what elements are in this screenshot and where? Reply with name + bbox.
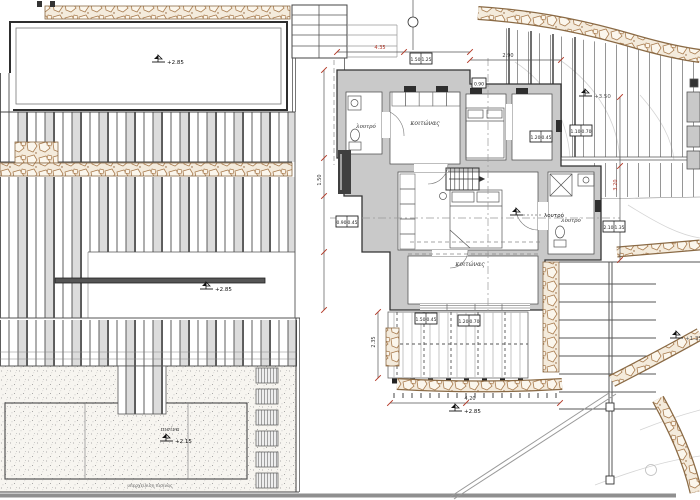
stone-wall-top [45,6,290,19]
stone-wall-steps [543,262,559,372]
keynote-value: 0.90 [336,220,346,226]
bedroom-lower-label: κοιτώνας [454,261,485,268]
keynote-box: 0.90 [472,78,486,88]
pool-label: πισίνα [160,426,180,433]
keynote-value: 0.45 [541,135,551,141]
level-marker-icon [449,404,462,411]
stone-step-detail [15,142,58,163]
keynote-value: 1.35 [614,225,624,231]
stone-column-left [386,328,399,366]
deck-band-b [0,177,295,252]
level-marker-icon [670,331,683,338]
dim-value: 1.50 [317,174,323,185]
keynote-value: 1.25 [421,57,431,63]
keynote-value: 0.45 [426,317,436,323]
level-value: +3.50 [594,94,611,100]
level-note: λουτρό [544,212,565,219]
keynote-value: 1.20 [530,135,540,141]
keynote-value: 1.20 [458,319,468,325]
deck-band-b2 [0,252,88,318]
keynote-value: 0.70 [469,319,479,325]
level-value: +1.35 [685,336,700,342]
keynote-box: 1.20 0.45 [530,131,552,142]
terrace-slab [10,22,287,110]
keynote-box: 0.90 0.45 [336,216,358,227]
site-boundary-bar [0,494,676,498]
keynote-value: 0.90 [474,82,484,88]
stone-wall-mid [0,163,292,176]
dim-value: 2.90 [502,53,513,59]
upper-terrace [10,1,290,110]
level-value: +2.15 [175,439,192,445]
bathtub-icon [338,150,351,194]
level-marker: +2.85 [200,282,232,293]
deck-bands [0,73,300,366]
bath-left-label: λουτρό [355,123,376,130]
garden-path [450,391,616,499]
dim-value: 2.35 [371,336,377,347]
keynote-value: 0.45 [347,220,357,226]
keynote-value: 0.70 [581,129,591,135]
pool-overflow-caption: υπερχείλιση πισίνας [127,482,173,489]
level-value: +2.85 [167,60,184,66]
bedroom-main-label: κοιτώνας [409,120,440,127]
keynote-box: 2.10 1.35 [603,221,625,232]
level-marker: +2.85 [449,404,481,415]
keynote-bubble [408,17,418,27]
dim-value: 3.20 [613,179,619,190]
room-bedroom-main [390,92,460,164]
stone-wall-under-veranda [397,384,562,386]
keynote-value: 2.10 [603,225,613,231]
keynote-value: 1.50 [410,57,420,63]
level-value: +2.85 [215,287,232,293]
keynote-box: 1.50 1.25 [410,53,432,64]
keynote-box: 1.10 0.70 [570,125,592,136]
slope-deck-lower [586,163,700,197]
site-plan-canvas: πισίνα υπερχείλιση πισίνας [0,0,700,500]
room-top-right-a [466,94,506,160]
room-top-right-b [512,94,552,160]
pool-deck-patch [118,366,166,414]
dim-value: 4.20 [464,396,475,402]
keynote-box: 1.20 0.70 [458,315,480,326]
keynote-value: 1.50 [415,317,425,323]
keynote-box: 1.50 0.45 [415,313,437,324]
low-wall-bench [55,278,265,283]
keynote-value: 1.10 [570,129,580,135]
level-value: +2.85 [464,409,481,415]
site-plan-drawing: πισίνα υπερχείλιση πισίνας [0,0,700,500]
dim-value: 4.35 [374,45,385,51]
